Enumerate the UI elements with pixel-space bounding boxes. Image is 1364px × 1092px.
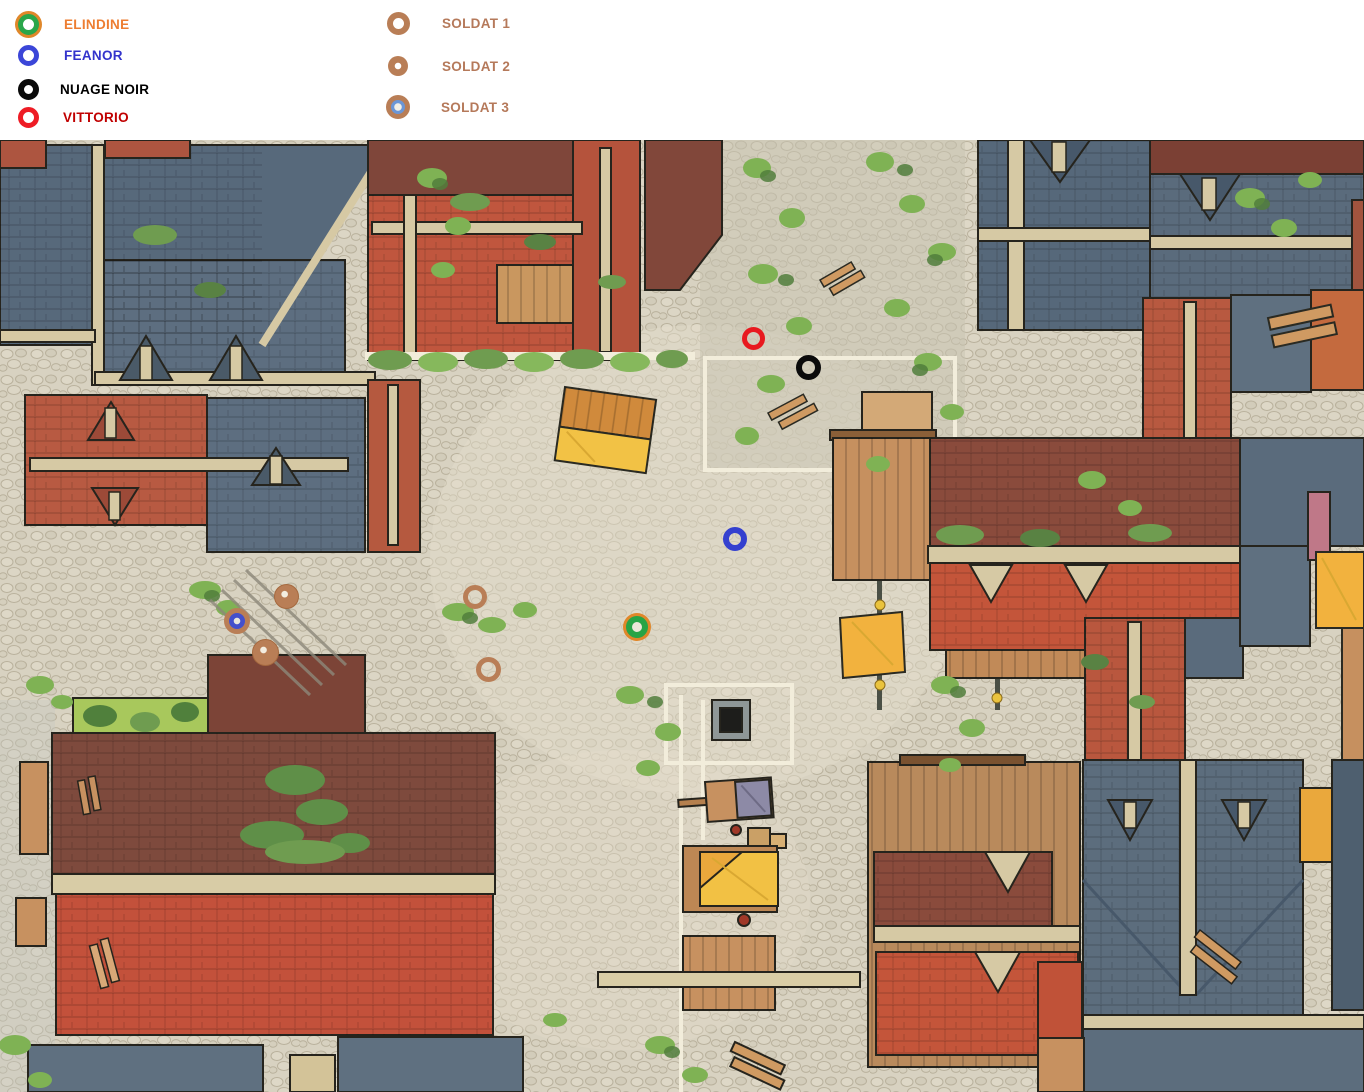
map-token-nuage-noir[interactable]: [796, 355, 821, 380]
legend-item-vittorio: VITTORIO: [18, 107, 129, 128]
legend-label-soldat-3: SOLDAT 3: [441, 100, 509, 115]
legend-label-soldat-2: SOLDAT 2: [442, 59, 510, 74]
soldat-1-token-icon[interactable]: [387, 12, 410, 35]
battle-map-screen: ELINDINE FEANOR NUAGE NOIR VITTORIO SOLD…: [0, 0, 1364, 1092]
legend-panel: ELINDINE FEANOR NUAGE NOIR VITTORIO SOLD…: [0, 0, 1364, 140]
map-token-vittorio[interactable]: [742, 327, 765, 350]
feanor-token-icon[interactable]: [18, 45, 39, 66]
map-token-soldat-1-a[interactable]: [463, 585, 487, 609]
legend-item-elindine: ELINDINE: [18, 14, 129, 35]
soldat-2-token-icon[interactable]: [388, 56, 408, 76]
legend-label-feanor: FEANOR: [64, 48, 123, 63]
elindine-token-icon[interactable]: [18, 14, 39, 35]
legend-item-soldat-1: SOLDAT 1: [387, 12, 510, 35]
vittorio-token-icon[interactable]: [18, 107, 39, 128]
map-token-soldat-2-a[interactable]: [274, 584, 299, 609]
legend-item-nuage-noir: NUAGE NOIR: [18, 79, 149, 100]
town-map[interactable]: [0, 140, 1364, 1092]
map-token-soldat-1-b[interactable]: [476, 657, 501, 682]
soldat-3-token-icon[interactable]: [386, 95, 410, 119]
legend-item-feanor: FEANOR: [18, 45, 123, 66]
map-token-soldat-3[interactable]: [224, 608, 250, 634]
legend-label-elindine: ELINDINE: [64, 17, 129, 32]
legend-item-soldat-2: SOLDAT 2: [388, 56, 510, 76]
token-layer: [0, 140, 1364, 1092]
legend-label-nuage-noir: NUAGE NOIR: [60, 82, 149, 97]
legend-item-soldat-3: SOLDAT 3: [386, 95, 509, 119]
map-token-elindine[interactable]: [626, 616, 648, 638]
nuage-noir-token-icon[interactable]: [18, 79, 39, 100]
map-token-soldat-2-b[interactable]: [252, 639, 279, 666]
legend-label-soldat-1: SOLDAT 1: [442, 16, 510, 31]
map-token-feanor[interactable]: [723, 527, 747, 551]
legend-label-vittorio: VITTORIO: [63, 110, 129, 125]
